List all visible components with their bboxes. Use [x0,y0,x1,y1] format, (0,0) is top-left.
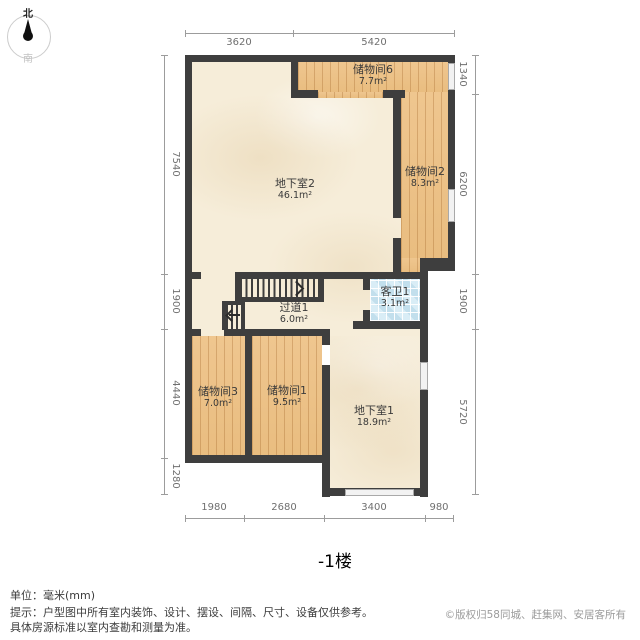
dim-tick [244,515,245,522]
window-storage2-right [448,189,455,222]
room-label-storage6: 储物间6 7.7m² [328,63,418,88]
note-tip-line1: 提示：户型图中所有室内装饰、设计、摆设、间隔、尺寸、设备仅供参考。 [10,604,373,620]
wall-storage6-bottom-b [383,90,405,98]
dim-label-bottom-3: 980 [409,502,469,513]
room-area: 6.0m² [249,314,339,325]
compass-needle-dot-icon [23,31,33,41]
dim-tick [161,494,168,495]
floor-title: -1楼 [270,547,400,572]
wall-top [185,55,455,62]
compass-south-label: 南 [13,50,43,65]
wall-storage6-bottom-a [298,90,318,98]
room-area: 18.9m² [329,417,419,428]
dim-label-top-0: 3620 [209,37,269,48]
dim-label-right-0: 1340 [456,52,468,96]
room-name: 客卫1 [350,285,440,298]
dim-label-left-1: 1900 [169,279,181,323]
floor-storage6-threshold [318,92,383,98]
dim-label-bottom-1: 2680 [254,502,314,513]
dimension-line-top [185,33,455,34]
wall-storage-top-b [224,329,330,336]
wall-basement2-right-a [393,98,401,218]
copyright-text: ©版权归58同城、赶集网、安居客所有 [445,607,626,622]
dim-tick [425,515,426,522]
note-tip-line2: 具体房源标准以室内查勘和测量为准。 [10,619,197,635]
dim-label-right-2: 1900 [456,279,468,323]
window-basement1-bottom [345,489,414,496]
compass: 北 南 [0,0,60,70]
room-name: 过道1 [249,301,339,314]
dim-tick [161,55,168,56]
room-area: 3.1m² [350,298,440,309]
dimension-line-left [164,55,165,495]
room-label-bath1: 客卫1 3.1m² [350,285,440,310]
room-area: 46.1m² [250,190,340,201]
compass-north-label: 北 [13,5,43,20]
wall-basement2-right-b [393,238,401,272]
room-label-storage1: 储物间1 9.5m² [242,384,332,409]
room-label-hallway1: 过道1 6.0m² [249,301,339,326]
floor-storage2-ext [401,258,420,272]
dim-tick [454,30,455,37]
dim-tick [161,274,168,275]
dim-label-bottom-0: 1980 [184,502,244,513]
room-label-basement1: 地下室1 18.9m² [329,404,419,429]
note-unit: 单位：毫米(mm) [10,587,95,603]
stairs-main-flight [240,279,318,297]
dim-label-left-3: 1280 [169,454,181,498]
dimension-line-bottom [185,518,454,519]
dim-tick [161,458,168,459]
dim-tick [472,55,479,56]
wall-hall-top [235,272,420,279]
dim-label-right-3: 5720 [456,390,468,434]
dim-tick [472,274,479,275]
wall-storage-top-a [185,329,201,336]
stairs-return-right-wall [241,301,245,330]
dim-tick [472,329,479,330]
wall-hall-top-stub [185,272,201,279]
dim-tick [161,329,168,330]
dim-label-left-2: 4440 [169,371,181,415]
dim-label-bottom-2: 3400 [344,502,404,513]
room-label-basement2: 地下室2 46.1m² [250,177,340,202]
room-area: 9.5m² [242,397,332,408]
dim-tick [293,30,294,37]
wall-storage6-stub [291,55,298,98]
room-name: 储物间6 [328,63,418,76]
room-name: 地下室1 [329,404,419,417]
dim-label-left-0: 7540 [169,142,181,186]
room-area: 7.7m² [328,76,418,87]
room-name: 储物间1 [242,384,332,397]
window-basement1-right [420,362,428,390]
dim-tick [472,494,479,495]
dim-tick [185,30,186,37]
room-name: 地下室2 [250,177,340,190]
dim-tick [324,515,325,522]
dim-tick [453,515,454,522]
stairs-main-right-cap [318,272,324,302]
window-storage6-right [448,63,455,90]
dim-label-top-1: 5420 [344,37,404,48]
wall-storage-bottom [185,455,330,463]
wall-bath-left-b [363,310,370,329]
dim-tick [472,94,479,95]
dimension-line-right [475,55,476,495]
dim-label-right-1: 6200 [456,162,468,206]
dim-tick [185,515,186,522]
